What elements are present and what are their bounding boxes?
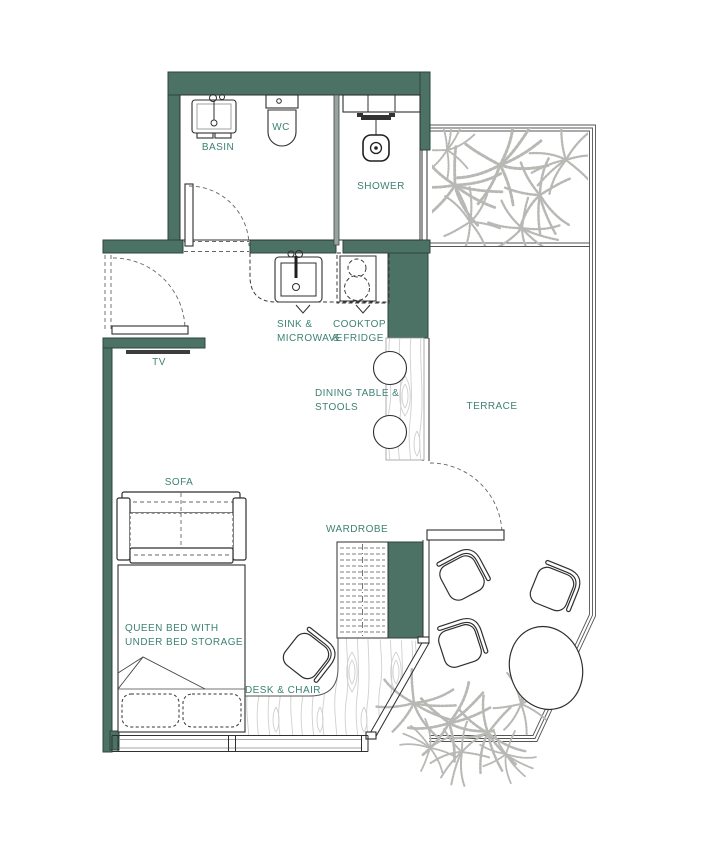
terrace-table-icon bbox=[499, 617, 593, 719]
terrace-chair-icon bbox=[434, 547, 491, 604]
label-cooktop-fridge: COOKTOP & FRIDGE bbox=[333, 318, 386, 345]
label-basin: BASIN bbox=[202, 141, 234, 155]
kitchen-sink-icon bbox=[275, 251, 322, 303]
label-wardrobe: WARDROBE bbox=[326, 523, 388, 537]
stool-icon bbox=[374, 416, 407, 449]
studio-floor-plan: BASIN WC SHOWER SINK & MICROWAVE COOKTOP… bbox=[0, 0, 720, 858]
label-shower: SHOWER bbox=[357, 180, 405, 194]
basin-icon bbox=[192, 95, 236, 139]
label-terrace: TERRACE bbox=[467, 400, 518, 414]
terrace-door bbox=[427, 463, 504, 540]
stool-icon bbox=[374, 352, 407, 385]
label-desk-chair: DESK & CHAIR bbox=[245, 684, 321, 698]
shower-icon bbox=[334, 95, 420, 245]
terrace-chair-icon bbox=[527, 561, 582, 616]
bathroom-door bbox=[184, 184, 249, 252]
label-queen-bed: QUEEN BED WITH UNDER BED STORAGE bbox=[125, 622, 243, 649]
desk-chair-icon bbox=[279, 626, 338, 685]
terrace-chair-icon bbox=[435, 617, 488, 670]
label-dining: DINING TABLE & STOOLS bbox=[315, 387, 399, 414]
label-wc: WC bbox=[272, 121, 290, 135]
floor-plan-drawing bbox=[0, 0, 720, 858]
label-sofa: SOFA bbox=[165, 476, 193, 490]
pillow-icon bbox=[183, 694, 241, 727]
cooktop-icon bbox=[337, 253, 389, 303]
entry-door bbox=[105, 255, 188, 334]
label-tv: TV bbox=[152, 356, 166, 370]
wardrobe-icon bbox=[337, 542, 388, 638]
terrace-planter bbox=[405, 103, 609, 273]
pillow-icon bbox=[122, 694, 179, 727]
planter-plants-icon bbox=[405, 103, 609, 273]
sofa-icon bbox=[117, 492, 246, 563]
tv-icon bbox=[126, 350, 190, 354]
